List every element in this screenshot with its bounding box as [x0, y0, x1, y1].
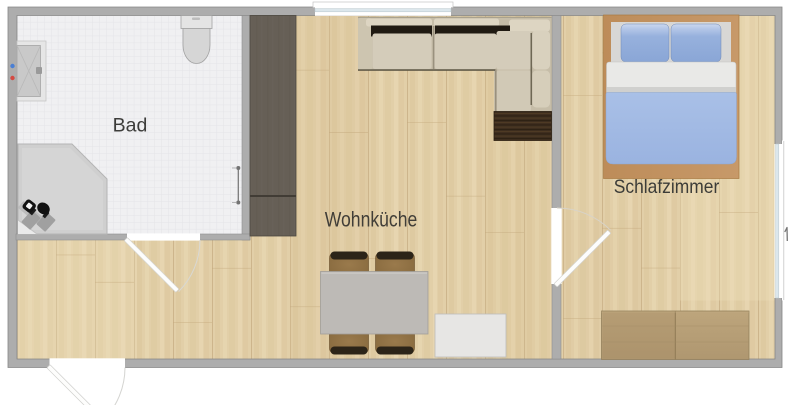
svg-text:Schlafzimmer: Schlafzimmer — [614, 176, 720, 198]
svg-text:Wohnküche: Wohnküche — [325, 208, 418, 232]
svg-text:Bad: Bad — [113, 115, 148, 137]
